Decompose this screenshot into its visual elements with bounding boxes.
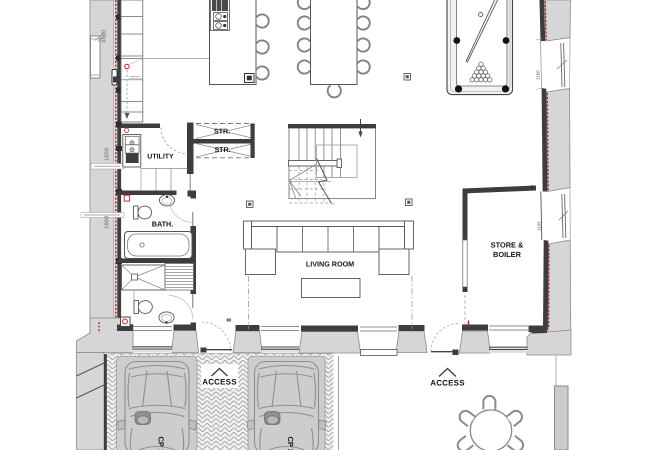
svg-text:1800: 1800 xyxy=(104,215,111,229)
svg-text:LIVING ROOM: LIVING ROOM xyxy=(306,260,354,269)
svg-text:BOILER: BOILER xyxy=(493,250,522,259)
svg-text:1100: 1100 xyxy=(536,70,541,80)
svg-text:STR.: STR. xyxy=(214,129,230,136)
svg-text:CP 1.: CP 1. xyxy=(157,437,166,450)
svg-text:4550: 4550 xyxy=(101,29,108,43)
svg-text:BATH.: BATH. xyxy=(152,220,173,229)
svg-text:1100: 1100 xyxy=(537,221,542,231)
svg-text:1850: 1850 xyxy=(104,147,111,161)
svg-text:ACCESS: ACCESS xyxy=(202,378,237,387)
svg-text:CP 2.: CP 2. xyxy=(286,437,295,450)
svg-text:STR.: STR. xyxy=(215,147,231,154)
svg-text:UTILITY: UTILITY xyxy=(147,154,174,161)
svg-text:ACCESS: ACCESS xyxy=(430,379,465,388)
svg-text:STORE &: STORE & xyxy=(491,241,524,250)
